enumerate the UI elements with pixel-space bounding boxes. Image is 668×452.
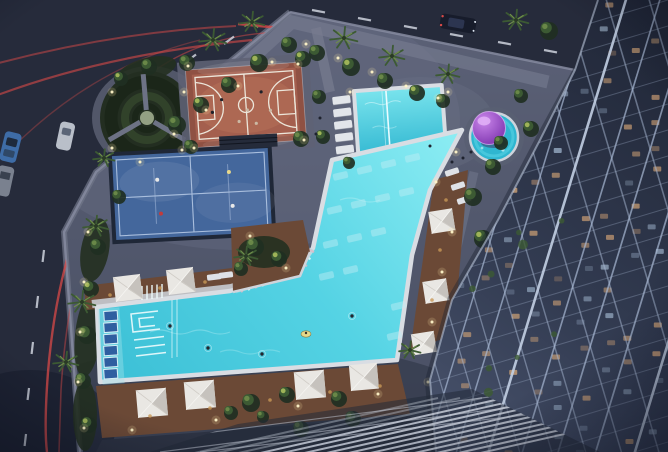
aerial-render-stage: [0, 0, 668, 452]
aerial-render: [0, 0, 668, 452]
vignette: [0, 0, 668, 452]
